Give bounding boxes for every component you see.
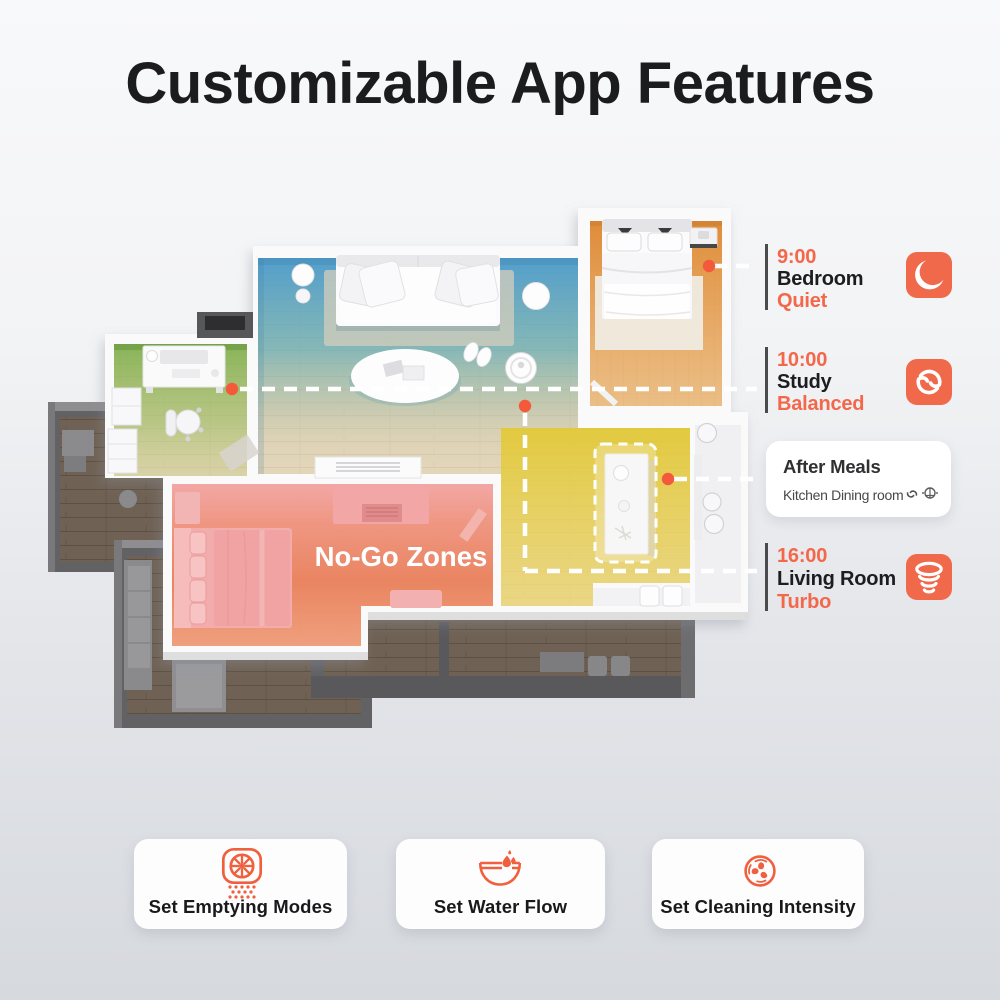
- svg-text:No-Go Zones: No-Go Zones: [315, 541, 488, 572]
